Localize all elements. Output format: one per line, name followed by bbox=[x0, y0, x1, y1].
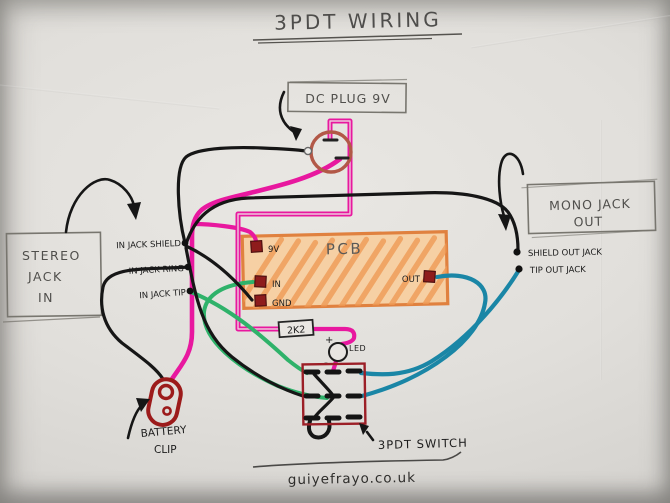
pad-label-gnd: GND bbox=[272, 299, 292, 309]
pcb-board: PCB bbox=[237, 231, 470, 309]
stereo-jack-label-line3: IN bbox=[38, 290, 54, 305]
pad-out bbox=[424, 271, 436, 283]
page-title: 3PDT WIRING bbox=[274, 7, 442, 35]
battery-clip-snap-small bbox=[163, 407, 170, 414]
battery-label-line2: CLIP bbox=[154, 444, 177, 456]
pad-label-9v: 9V bbox=[268, 245, 279, 255]
pad-9v bbox=[251, 241, 263, 253]
pad-in bbox=[255, 276, 267, 288]
arrowhead bbox=[127, 202, 141, 220]
wiring-diagram: 3PDT WIRING DC PLUG 9V MONO JACK OUT STE… bbox=[0, 0, 670, 503]
terminal-out-tip bbox=[515, 265, 522, 272]
pad-label-in: IN bbox=[272, 280, 281, 290]
arrow-mono-to-terminals bbox=[499, 154, 523, 216]
dc-plug-box: DC PLUG 9V bbox=[288, 80, 407, 113]
pad-gnd bbox=[255, 295, 267, 307]
diagram-title-group: 3PDT WIRING bbox=[274, 7, 442, 35]
mono-jack-label-line1: MONO JACK bbox=[549, 196, 631, 213]
mono-jack-box: MONO JACK OUT bbox=[521, 179, 658, 238]
mono-jack-label-line2: OUT bbox=[573, 214, 603, 230]
battery-clip-snap-large bbox=[160, 386, 173, 399]
wire-switch-internal-2 bbox=[314, 398, 333, 418]
in-jack-shield-label: IN JACK SHIELD bbox=[116, 239, 182, 251]
stereo-jack-label-line2: JACK bbox=[27, 269, 63, 284]
led-minus-sign: - bbox=[324, 356, 328, 369]
stereo-jack-label-line1: STEREO bbox=[22, 248, 81, 263]
arrowhead bbox=[290, 126, 302, 141]
dc-plug-terminal-sleeve bbox=[304, 147, 311, 154]
switch-annotation-label: 3PDT SWITCH bbox=[378, 436, 468, 452]
paper-photo: 3PDT WIRING DC PLUG 9V MONO JACK OUT STE… bbox=[0, 0, 670, 503]
sketch-line bbox=[3, 317, 100, 322]
out-jack-shield-label: SHIELD OUT JACK bbox=[528, 248, 603, 259]
footer-url: guiyefrayo.co.uk bbox=[288, 470, 416, 488]
sketch-line bbox=[290, 80, 407, 83]
switch-3pdt bbox=[303, 364, 366, 425]
out-jack-tip-label: TIP OUT JACK bbox=[529, 265, 586, 276]
terminal-in-tip bbox=[187, 288, 194, 295]
terminal-out-shield bbox=[513, 248, 520, 255]
led-plus-sign: + bbox=[325, 335, 333, 346]
battery-label-line1: BATTERY bbox=[140, 424, 187, 440]
resistor-2k2: 2K2 bbox=[279, 320, 314, 337]
battery-clip bbox=[146, 377, 184, 428]
in-jack-ring-label: IN JACK RING bbox=[129, 264, 185, 277]
terminal-in-ring bbox=[185, 264, 192, 271]
wire-ring-to-battery bbox=[102, 267, 188, 379]
in-jack-tip-label: IN JACK TIP bbox=[139, 288, 186, 301]
pad-label-out: OUT bbox=[402, 275, 421, 285]
arrow-to-switch bbox=[367, 432, 373, 440]
terminal-in-shield bbox=[182, 240, 189, 247]
wire-switch-internal-1 bbox=[314, 374, 332, 394]
footer-underline bbox=[253, 452, 461, 467]
switch-lugs bbox=[306, 371, 360, 418]
resistor-label: 2K2 bbox=[287, 324, 306, 336]
dc-plug-label: DC PLUG 9V bbox=[305, 91, 391, 106]
arrowhead bbox=[498, 214, 511, 231]
arrow-stereo-to-terminals bbox=[66, 179, 134, 232]
led-label: LED bbox=[349, 344, 366, 353]
stereo-jack-box: STEREO JACK IN bbox=[3, 232, 102, 322]
pcb-label: PCB bbox=[326, 240, 364, 259]
